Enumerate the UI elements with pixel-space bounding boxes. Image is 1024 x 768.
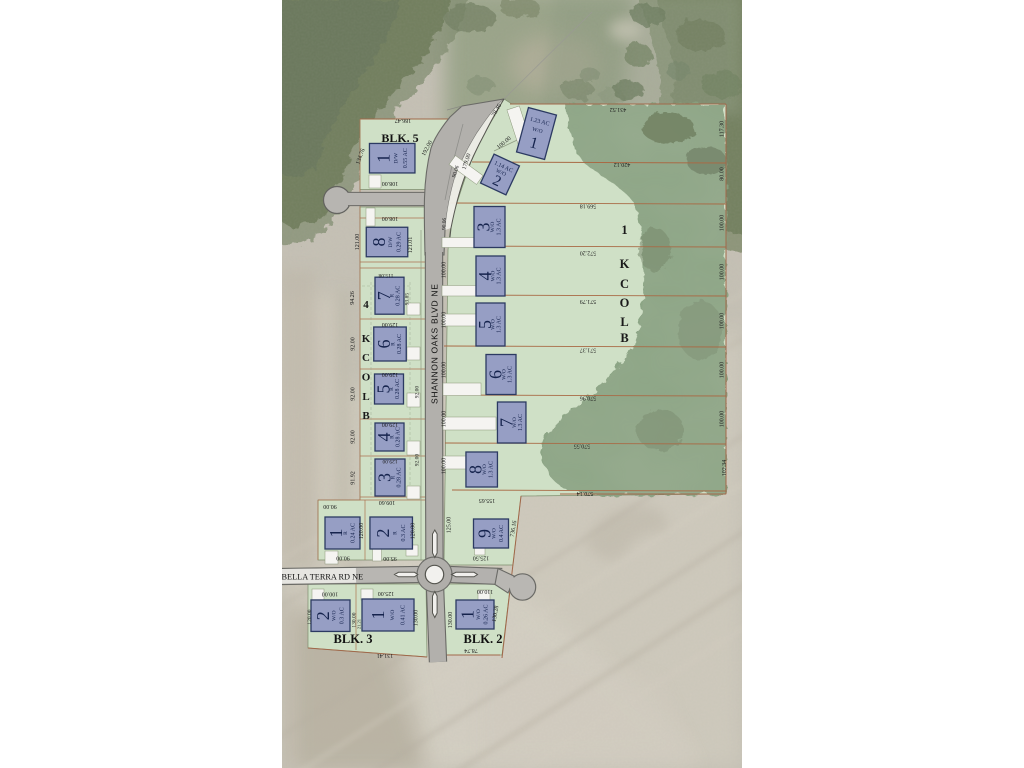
svg-text:R: R: [390, 475, 396, 479]
svg-text:D/W: D/W: [394, 152, 400, 164]
svg-text:W/O: W/O: [390, 610, 396, 621]
svg-text:1.3 AC: 1.3 AC: [518, 414, 524, 431]
svg-text:120.00: 120.00: [411, 523, 417, 540]
svg-text:570.14: 570.14: [577, 490, 594, 496]
svg-text:125.00: 125.00: [378, 590, 395, 596]
svg-text:BLK. 3: BLK. 3: [334, 632, 373, 646]
svg-text:BLK. 5: BLK. 5: [381, 131, 418, 145]
svg-text:129.00: 129.00: [382, 371, 399, 377]
svg-text:0.3 AC: 0.3 AC: [340, 607, 346, 624]
svg-text:100.00: 100.00: [442, 362, 448, 379]
svg-text:O: O: [362, 372, 371, 384]
svg-text:95.00: 95.00: [383, 555, 397, 561]
svg-text:K: K: [620, 257, 630, 271]
svg-text:W/O: W/O: [490, 222, 496, 233]
svg-text:92.00: 92.00: [415, 454, 421, 467]
svg-text:131.41: 131.41: [377, 652, 394, 658]
svg-text:B: B: [362, 410, 370, 422]
svg-text:1.3 AC: 1.3 AC: [497, 267, 503, 284]
svg-text:0.4 AC: 0.4 AC: [499, 525, 505, 542]
svg-text:100.00: 100.00: [720, 313, 726, 330]
svg-text:1: 1: [368, 611, 388, 620]
svg-text:130.00: 130.00: [448, 612, 454, 629]
svg-text:125.50: 125.50: [473, 555, 490, 561]
svg-text:572.20: 572.20: [580, 250, 597, 256]
svg-text:121.01: 121.01: [408, 237, 414, 254]
svg-text:0.55 AC: 0.55 AC: [403, 148, 409, 168]
svg-text:W/O: W/O: [501, 369, 507, 380]
svg-text:102.34: 102.34: [722, 460, 728, 477]
svg-text:110.00: 110.00: [477, 588, 493, 594]
svg-text:1.3 AC: 1.3 AC: [489, 461, 495, 478]
svg-text:129.00: 129.00: [382, 421, 399, 427]
svg-text:4: 4: [363, 299, 369, 311]
svg-text:108.00: 108.00: [382, 215, 399, 221]
svg-text:1.3 AC: 1.3 AC: [496, 218, 502, 235]
svg-text:L: L: [362, 391, 369, 403]
svg-text:92.00: 92.00: [351, 387, 357, 401]
svg-text:109.60: 109.60: [379, 499, 396, 505]
svg-text:108.00: 108.00: [382, 180, 399, 186]
svg-text:0.29 AC: 0.29 AC: [397, 232, 403, 252]
svg-text:125.00: 125.00: [447, 517, 453, 534]
svg-text:1: 1: [373, 154, 393, 163]
svg-text:431.52: 431.52: [610, 106, 627, 112]
svg-text:SHANNON OAKS BLVD NE: SHANNON OAKS BLVD NE: [430, 283, 440, 404]
svg-text:117.30: 117.30: [720, 121, 726, 137]
svg-text:100.00: 100.00: [720, 362, 726, 379]
svg-text:92.00: 92.00: [351, 337, 357, 351]
svg-text:100.00: 100.00: [442, 262, 448, 279]
svg-text:2: 2: [313, 611, 333, 620]
svg-text:155.65: 155.65: [479, 497, 496, 503]
svg-text:0.24 AC: 0.24 AC: [350, 523, 356, 543]
svg-text:78.74: 78.74: [464, 647, 478, 653]
svg-text:1: 1: [458, 610, 478, 619]
svg-text:100.00: 100.00: [720, 215, 726, 232]
svg-text:186.47: 186.47: [395, 117, 412, 123]
svg-text:100.00: 100.00: [442, 411, 448, 428]
svg-text:420.12: 420.12: [614, 161, 631, 167]
svg-text:0.28 AC: 0.28 AC: [397, 334, 403, 354]
svg-text:100.00: 100.00: [442, 458, 448, 475]
svg-text:571.79: 571.79: [580, 298, 597, 304]
svg-text:W/O: W/O: [332, 610, 338, 621]
svg-text:570.55: 570.55: [574, 443, 591, 449]
svg-text:94.26: 94.26: [350, 291, 356, 305]
svg-text:2: 2: [373, 529, 393, 538]
svg-text:BELLA TERRA RD NE: BELLA TERRA RD NE: [282, 573, 364, 582]
svg-text:R: R: [393, 531, 399, 535]
svg-text:0.28 AC: 0.28 AC: [397, 467, 403, 487]
svg-text:80.00: 80.00: [720, 167, 726, 181]
svg-text:100.00: 100.00: [322, 591, 339, 597]
svg-text:K: K: [362, 333, 371, 345]
svg-text:90.00: 90.00: [323, 503, 337, 509]
svg-text:92.00: 92.00: [351, 430, 357, 444]
svg-text:90.06: 90.06: [441, 217, 447, 230]
svg-text:129.00: 129.00: [382, 458, 397, 464]
svg-text:121.00: 121.00: [355, 234, 361, 251]
svg-text:W/O: W/O: [476, 609, 482, 620]
svg-text:O: O: [620, 296, 630, 310]
svg-text:93.85: 93.85: [405, 293, 411, 306]
svg-text:8: 8: [369, 238, 389, 247]
svg-text:0.41 AC: 0.41 AC: [401, 605, 407, 625]
svg-text:0.28 AC: 0.28 AC: [395, 379, 401, 399]
svg-text:100.00: 100.00: [442, 312, 448, 329]
svg-text:100.00: 100.00: [720, 411, 726, 428]
svg-text:100.00: 100.00: [720, 264, 726, 281]
svg-text:569.18: 569.18: [580, 203, 597, 209]
svg-text:92.00: 92.00: [415, 386, 421, 399]
svg-text:L: L: [620, 315, 628, 329]
svg-text:21.21: 21.21: [357, 619, 362, 629]
svg-text:129.00: 129.00: [382, 321, 399, 327]
svg-text:0.26 AC: 0.26 AC: [484, 604, 490, 624]
svg-text:R: R: [343, 531, 349, 535]
svg-text:570.96: 570.96: [580, 395, 597, 401]
svg-text:W/O: W/O: [492, 528, 498, 539]
svg-text:1.3 AC: 1.3 AC: [508, 366, 514, 383]
svg-text:120.00: 120.00: [307, 609, 313, 624]
svg-text:B: B: [620, 331, 628, 345]
svg-text:R: R: [391, 342, 397, 346]
svg-text:D/W: D/W: [388, 236, 394, 248]
svg-text:0.28 AC: 0.28 AC: [396, 427, 402, 447]
svg-text:0.28 AC: 0.28 AC: [396, 286, 402, 306]
svg-text:120.00: 120.00: [359, 523, 365, 540]
svg-text:571.37: 571.37: [580, 347, 597, 353]
svg-text:C: C: [620, 277, 629, 291]
svg-text:1: 1: [621, 223, 627, 237]
svg-text:90.00: 90.00: [336, 555, 350, 561]
svg-text:130.00: 130.00: [414, 610, 420, 627]
svg-text:W/O: W/O: [482, 464, 488, 475]
svg-text:91.92: 91.92: [351, 471, 357, 485]
svg-text:115.08: 115.08: [378, 272, 393, 278]
svg-text:BLK. 2: BLK. 2: [464, 632, 503, 646]
svg-text:0.3 AC: 0.3 AC: [401, 524, 407, 541]
svg-text:C: C: [362, 352, 370, 364]
svg-text:1.3 AC: 1.3 AC: [497, 316, 503, 333]
